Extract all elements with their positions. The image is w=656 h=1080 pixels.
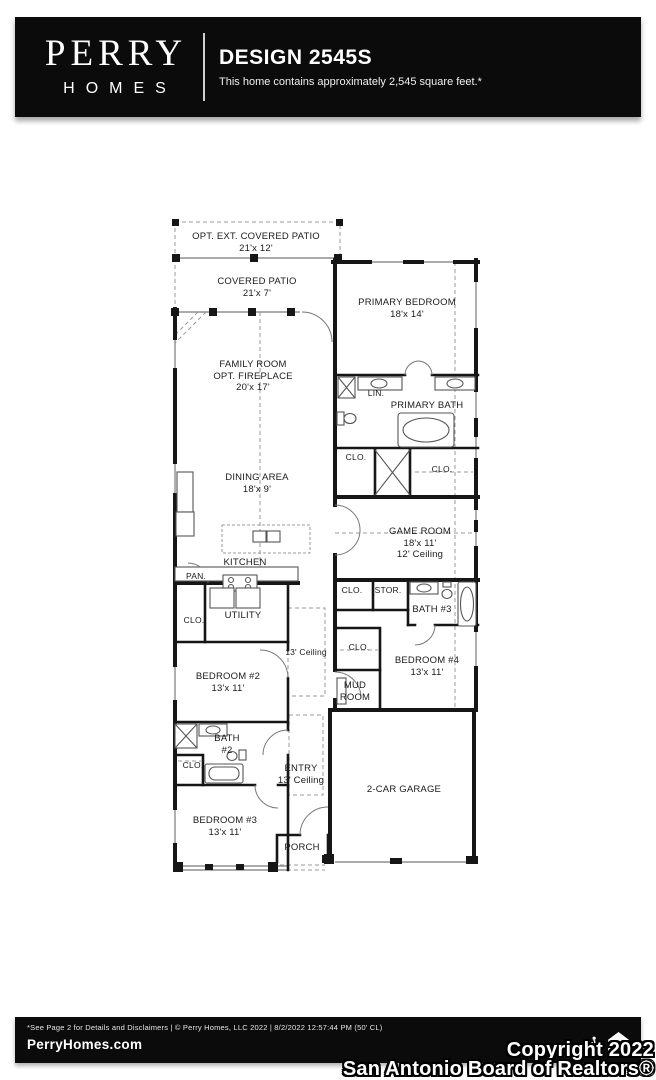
island-sink xyxy=(267,531,280,542)
room-label-bed4-closet: CLO. xyxy=(349,642,370,652)
room-label-utility: UTILITY xyxy=(225,610,262,622)
room-label-primary-closet-right: CLO. xyxy=(432,464,453,474)
fridge xyxy=(176,512,194,536)
room-label-game-room: GAME ROOM 18'x 11' 12' Ceiling xyxy=(389,526,451,561)
room-label-linen: LIN. xyxy=(368,388,384,398)
room-label-primary-bedroom: PRIMARY BEDROOM 18'x 14' xyxy=(358,297,456,320)
sink xyxy=(371,379,387,388)
room-label-storage: STOR. xyxy=(375,585,402,595)
label-hall-ceiling: 13' Ceiling xyxy=(285,647,327,657)
room-label-primary-bath: PRIMARY BATH xyxy=(391,400,464,412)
room-label-porch: PORCH xyxy=(284,842,319,854)
room-label-family-room: FAMILY ROOM OPT. FIREPLACE 20'x 17' xyxy=(213,359,292,394)
room-label-bedroom2: BEDROOM #2 13'x 11' xyxy=(196,671,260,694)
floorplan-flyer: PERRY HOMES DESIGN 2545S This home conta… xyxy=(0,0,656,1080)
footer-disclaimer: *See Page 2 for Details and Disclaimers … xyxy=(27,1023,382,1032)
counter xyxy=(177,472,193,512)
shower-x xyxy=(375,450,410,495)
interior-walls xyxy=(175,375,478,870)
room-label-utility-closet: CLO. xyxy=(184,615,205,625)
toilet xyxy=(442,590,452,599)
sink xyxy=(447,379,463,388)
room-label-pantry: PAN. xyxy=(186,571,206,581)
floorplan: OPT. EXT. COVERED PATIO 21'x 12' COVERED… xyxy=(0,0,656,1080)
room-label-bath2: BATH #2 xyxy=(214,733,239,756)
room-label-entry: ENTRY 13' Ceiling xyxy=(278,763,324,786)
toilet-tank xyxy=(443,582,451,587)
room-label-mud-room: MUD ROOM xyxy=(340,680,370,703)
mls-copyright-watermark: Copyright 2022 San Antonio Board of Real… xyxy=(343,1041,654,1079)
room-label-dining-area: DINING AREA 18'x 9' xyxy=(225,472,288,495)
room-label-kitchen: KITCHEN xyxy=(223,557,266,569)
watermark-line2: San Antonio Board of Realtors® xyxy=(343,1060,654,1079)
footer-website: PerryHomes.com xyxy=(27,1037,142,1052)
room-label-opt-ext-patio: OPT. EXT. COVERED PATIO 21'x 12' xyxy=(192,231,320,254)
room-label-bed3-closet: CLO. xyxy=(183,760,204,770)
toilet-tank xyxy=(239,750,246,760)
tub-basin xyxy=(403,418,449,442)
sink xyxy=(417,584,431,592)
dryer xyxy=(236,588,260,608)
room-label-garage: 2-CAR GARAGE xyxy=(367,784,441,796)
room-label-covered-patio: COVERED PATIO 21'x 7' xyxy=(217,276,296,299)
tub-basin xyxy=(461,587,474,621)
room-label-bedroom4: BEDROOM #4 13'x 11' xyxy=(395,655,459,678)
island-sink xyxy=(253,531,266,542)
opt-fireplace xyxy=(175,312,206,343)
toilet-tank xyxy=(337,412,344,425)
room-label-primary-closet-left: CLO. xyxy=(346,452,367,462)
washer xyxy=(210,588,234,608)
toilet xyxy=(344,414,356,424)
room-label-bath3: BATH #3 xyxy=(412,604,451,616)
room-label-hall-closet: CLO. xyxy=(342,585,363,595)
room-label-bedroom3: BEDROOM #3 13'x 11' xyxy=(193,815,257,838)
